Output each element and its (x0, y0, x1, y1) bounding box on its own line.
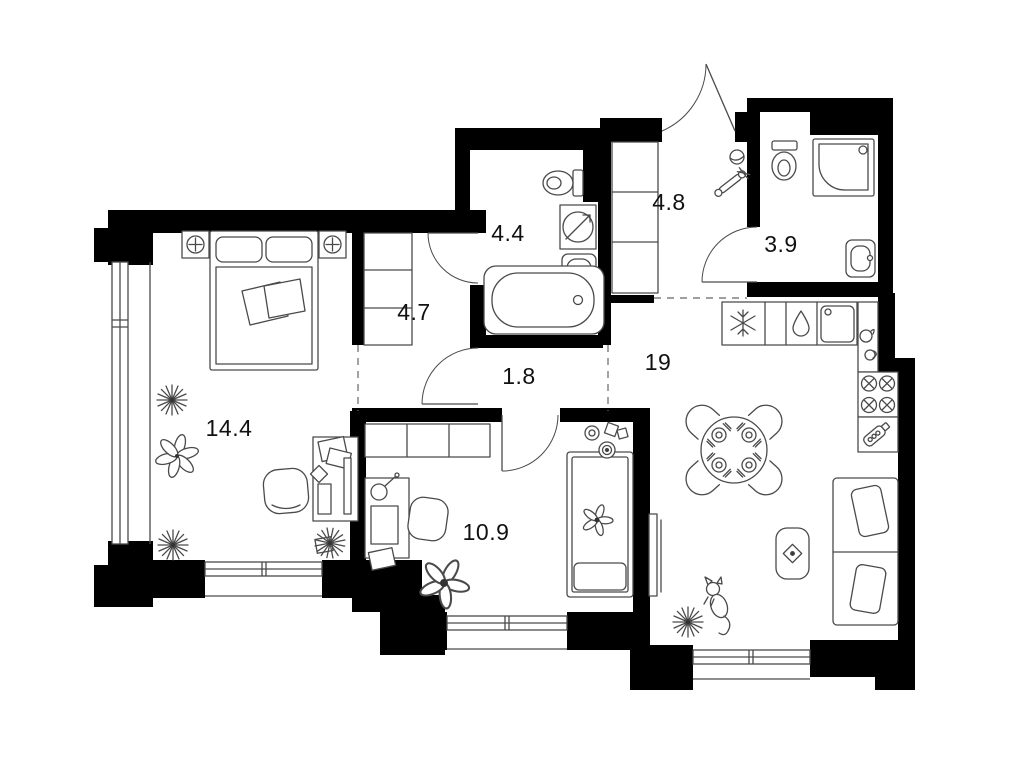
toilet-icon (543, 170, 583, 196)
floor-plan-page: 14.4 4.7 4.4 1.8 4.8 3.9 19 10.9 (0, 0, 1024, 768)
coffee-table-icon (776, 528, 809, 579)
hallway-door (422, 348, 478, 404)
wall-segment (470, 210, 486, 233)
shower-room-door (702, 227, 757, 282)
room-area-label: 4.4 (491, 220, 524, 246)
scooter-icon (711, 165, 751, 200)
plant-icon (673, 607, 703, 637)
plant-icon (150, 429, 203, 483)
wall-segment (810, 112, 878, 135)
room-area-label: 3.9 (764, 231, 797, 257)
cat-icon (704, 577, 731, 635)
wall-segment (735, 112, 760, 142)
room-area-label: 4.7 (397, 299, 430, 325)
nightstand-icon (182, 231, 209, 258)
wall-segment (608, 295, 654, 303)
wall-segment (630, 645, 693, 690)
wardrobe-icon (364, 233, 412, 345)
window (447, 616, 567, 649)
wall-segment (747, 282, 878, 297)
window (693, 650, 810, 679)
shower-icon (813, 139, 874, 196)
dining-table-icon (679, 399, 788, 502)
kitchen-sink-icon (821, 306, 854, 342)
walls (94, 98, 915, 690)
cutting-board-icon (858, 417, 898, 452)
office-chair-icon (406, 496, 449, 543)
wall-segment (455, 128, 611, 150)
plant-icon (157, 385, 187, 415)
tv-icon (649, 514, 661, 596)
bathroom-door (428, 233, 478, 283)
wardrobe-icon (365, 424, 490, 457)
wall-segment (352, 408, 502, 422)
window (205, 562, 322, 596)
room-area-label: 1.8 (502, 363, 535, 389)
bedroom2-door (502, 415, 558, 471)
sofa-icon (833, 478, 898, 625)
desk-icon (365, 473, 409, 570)
wall-segment (878, 293, 895, 365)
wall-segment (94, 565, 108, 607)
entrance-door (662, 64, 735, 131)
wall-segment (747, 98, 893, 112)
wall-segment (633, 408, 650, 612)
wall-segment (898, 360, 915, 690)
stove-icon (858, 372, 898, 417)
wall-segment (878, 98, 893, 300)
toilet-icon (772, 141, 797, 180)
bathtub-icon (484, 266, 604, 334)
room-area-label: 4.8 (652, 189, 685, 215)
wall-segment (600, 118, 662, 142)
office-chair-icon (262, 467, 310, 515)
plant-icon (158, 530, 188, 560)
wall-segment (108, 210, 470, 233)
wall-segment (477, 335, 603, 348)
wall-segment (567, 612, 650, 650)
ball-icon (730, 150, 744, 164)
wall-segment (94, 228, 108, 262)
window (112, 262, 150, 544)
floor-plan: 14.4 4.7 4.4 1.8 4.8 3.9 19 10.9 (0, 0, 1024, 768)
electrical-panel-icon (560, 205, 596, 249)
wall-segment (108, 210, 153, 265)
room-area-label: 19 (645, 349, 672, 375)
nightstand-icon (319, 231, 346, 258)
wall-segment (583, 150, 600, 202)
wall-segment (112, 560, 205, 598)
wall-segment (420, 612, 447, 650)
room-area-label: 10.9 (463, 519, 510, 545)
room-area-label: 14.4 (206, 415, 253, 441)
wardrobe-icon (612, 142, 658, 293)
single-bed-icon (567, 452, 633, 597)
sink-icon (846, 240, 875, 277)
double-bed-icon (210, 231, 318, 370)
